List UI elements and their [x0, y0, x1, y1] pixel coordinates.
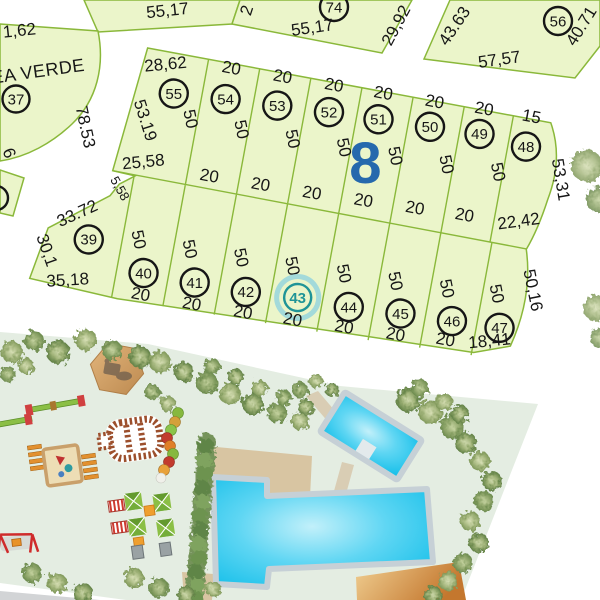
lot-41-side-measurement: 50: [179, 238, 201, 260]
lot-49-bottom-measurement: 20: [453, 204, 475, 226]
lot-43-number: 43: [289, 290, 306, 307]
lot-54-number: 54: [217, 91, 234, 108]
lot-50-number: 50: [422, 119, 439, 136]
pyramid-roof-icon: [156, 518, 175, 537]
pyramid-roof-icon: [152, 493, 171, 512]
lot-55-top-measurement: 28,62: [143, 53, 187, 76]
lot-42-number: 42: [237, 284, 254, 301]
awning-icon: [111, 521, 128, 534]
lot-49-side-measurement: 50: [435, 153, 457, 175]
lot-40-bottom-measurement: 20: [130, 283, 152, 305]
lot-54-bottom-measurement: 20: [198, 165, 220, 187]
lot-52-top-measurement: 20: [323, 74, 345, 96]
platform-icon: [144, 505, 155, 516]
lot-48-side-measurement: 50: [487, 161, 509, 183]
lot-43-side-measurement: 50: [281, 255, 303, 277]
lot-56-number: 56: [550, 13, 567, 30]
lot-48-number: 48: [518, 139, 535, 156]
lot-44-side-measurement: 50: [333, 262, 355, 284]
lot-47-bottom-measurement: 18,41: [467, 329, 511, 352]
lot-55-bottom-measurement: 25,58: [121, 150, 165, 173]
lot-51-bottom-measurement: 20: [352, 189, 374, 211]
slide-icon: [131, 545, 144, 559]
lot-44-bottom-measurement: 20: [333, 316, 355, 338]
lot-45-side-measurement: 50: [384, 270, 406, 292]
lot-56-marker[interactable]: 56: [544, 7, 572, 35]
lot-50-bottom-measurement: 20: [404, 197, 426, 219]
lot-42-side-measurement: 50: [230, 246, 252, 268]
lot-42-bottom-measurement: 20: [232, 301, 254, 323]
lot-45-bottom-measurement: 20: [385, 323, 407, 345]
lot-40-number: 40: [135, 265, 152, 282]
lot-50-top-measurement: 20: [424, 91, 446, 113]
lot-37-marker[interactable]: 37: [3, 86, 30, 113]
lot-41-number: 41: [186, 275, 203, 292]
lot-74-marker[interactable]: 74: [320, 0, 348, 21]
lot-41-bottom-measurement: 20: [181, 293, 203, 315]
lot-55-number: 55: [165, 86, 182, 103]
lot-43-bottom-measurement: 20: [282, 308, 304, 330]
lot-54-side-measurement: 50: [179, 108, 201, 130]
block-8: 8 28,62 20 20 20 20 20 20 15 53.19 50 50…: [23, 22, 588, 382]
awning-icon: [108, 499, 125, 512]
lot-46-side-measurement: 50: [436, 277, 458, 299]
lot-47-side-measurement: 50: [486, 283, 508, 305]
lot-53-number: 53: [269, 98, 286, 115]
block-number: 8: [349, 131, 381, 196]
area-verde-left-measurement: 1,62: [2, 19, 37, 41]
lot-48-top-measurement: 15: [521, 106, 543, 128]
lot-52-side-measurement: 50: [281, 128, 303, 150]
map-canvas: 55,17 55,17 29,92 2 74 43.63 57,57 40.71…: [0, 0, 600, 600]
lot-53-side-measurement: 50: [230, 118, 252, 140]
lot-74-number: 74: [326, 0, 343, 16]
subdivision-map: 55,17 55,17 29,92 2 74 43.63 57,57 40.71…: [0, 0, 600, 600]
lot-50-side-measurement: 50: [384, 145, 406, 167]
lot-51-top-measurement: 20: [372, 82, 394, 104]
lot-51-side-measurement: 50: [333, 136, 355, 158]
lot-49-number: 49: [471, 126, 488, 143]
lot-48-right-measurement: 53,31: [548, 157, 574, 202]
tree-cluster: [571, 150, 600, 348]
lot-53-top-measurement: 20: [272, 66, 294, 88]
lot-49-top-measurement: 20: [473, 98, 495, 120]
lot-53-bottom-measurement: 20: [250, 173, 272, 195]
area-verde-arc-measurement: 78.53: [72, 104, 99, 150]
lot-51-number: 51: [370, 112, 387, 129]
lot-37-number: 37: [8, 91, 25, 108]
lot-52-number: 52: [321, 104, 338, 121]
lot-39-bottom-measurement: 35,18: [46, 269, 90, 291]
lot-46-bottom-measurement: 20: [434, 329, 456, 351]
lot-39-number: 39: [80, 232, 97, 249]
lot-52-bottom-measurement: 20: [301, 182, 323, 204]
lot-46-number: 46: [444, 313, 461, 330]
lot-45-number: 45: [392, 306, 409, 323]
lot-54-top-measurement: 20: [220, 57, 242, 79]
pyramid-roof-icon: [128, 517, 147, 536]
slide-icon: [159, 542, 172, 556]
sandbox-icon: [43, 445, 83, 487]
pyramid-roof-icon: [124, 492, 143, 511]
lot-44-number: 44: [340, 299, 357, 316]
area-verde: 1,62 ÁREA VERDE 37 78.53 6: [0, 19, 100, 216]
lot-40-side-measurement: 50: [127, 228, 149, 250]
